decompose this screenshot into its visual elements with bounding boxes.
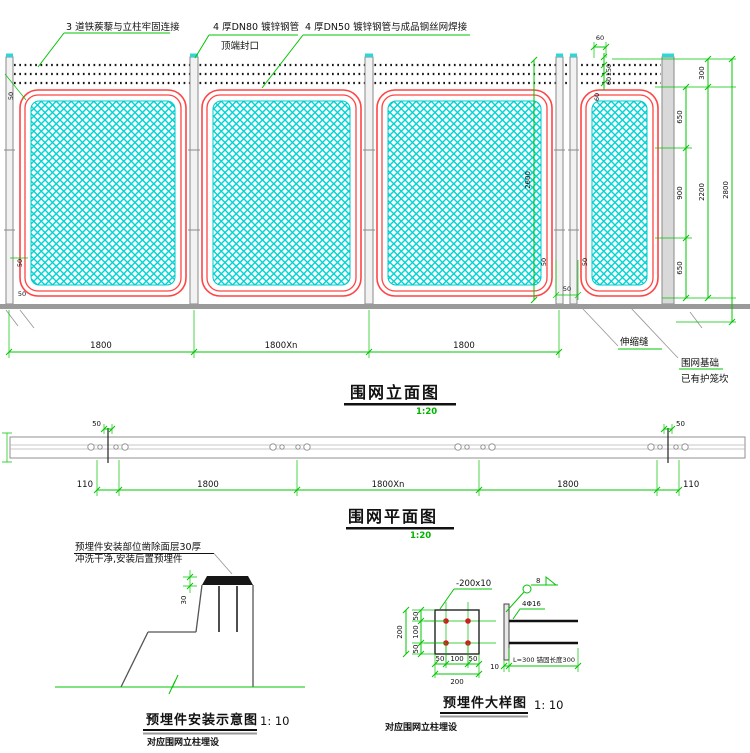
break-symbol	[169, 675, 178, 694]
view-scale: 1:20	[410, 531, 431, 541]
mesh-panel	[202, 90, 361, 296]
view-title: 预埋件安装示意图	[146, 712, 258, 728]
ground-line	[0, 304, 750, 309]
post-b	[365, 57, 373, 304]
dim-label: 50	[92, 420, 101, 428]
mesh-panel	[377, 90, 552, 296]
dim-label: 650	[676, 261, 684, 274]
cad-drawing-canvas: 1800 1800Xn 1800 650 900 650 300 2200 28…	[0, 0, 750, 753]
dim-label: 2200	[698, 183, 706, 201]
install-title-block: 预埋件安装示意图 1: 10 对应围网立柱埋设	[143, 712, 289, 748]
view-subtitle: 对应围网立柱埋设	[385, 721, 458, 733]
chisel-depth-dim: 30	[180, 570, 197, 604]
note-dn50: 4 厚DN50 镀锌钢管与成品钢丝网焊接	[305, 21, 468, 33]
dim-label: 900	[676, 186, 684, 199]
dim-label: 60	[596, 34, 604, 42]
embedded-plate-cap	[202, 576, 253, 585]
anchor-rods	[219, 586, 237, 632]
install-detail: 预埋件安装部位凿除面层30厚 冲洗干净,安装后置预埋件 30 预埋件安装示意图 …	[55, 541, 305, 748]
anchor-count-label: 4Φ16	[522, 600, 541, 608]
post-joint-2	[570, 57, 577, 304]
dim-label: 50	[412, 612, 420, 621]
view-scale: 1: 10	[534, 698, 563, 712]
title-underline-2	[143, 733, 257, 735]
dim-label: 50	[18, 290, 26, 298]
title-underline	[440, 712, 528, 714]
dim-label: 110	[683, 480, 699, 490]
note-expansion-joint: 伸缩缝	[620, 336, 649, 348]
dim-label: 50	[469, 655, 478, 663]
dim-label: 50	[16, 259, 24, 267]
mesh-panel	[581, 90, 658, 296]
dim-label: 200	[450, 678, 463, 686]
plate-horizontal-dims: 50 100 50 200	[432, 643, 482, 686]
note-foundation-2: 已有护笼坎	[681, 373, 729, 385]
dim-label: 150	[605, 64, 613, 76]
post-caps	[6, 54, 674, 58]
plan-fence-band	[10, 437, 745, 458]
dim-label: 50	[540, 258, 548, 266]
title-underline-2	[440, 716, 528, 718]
anchor-note: L=300 锚固长度300	[513, 655, 575, 664]
elevation-title-block: 围网立面图 1:20	[344, 383, 456, 417]
dim-label: 1800Xn	[265, 341, 298, 351]
dim-label: 1800	[197, 480, 219, 490]
plan-view: 50 50 110 1800 1800Xn 1800 110 围网平面图 1:2…	[2, 420, 745, 541]
view-title: 围网立面图	[350, 383, 440, 402]
post-joint-1	[556, 57, 563, 304]
dim-label: 1800	[453, 341, 475, 351]
note-foundation-1: 围网基础	[681, 357, 719, 369]
weld-size-label: 8	[536, 577, 540, 585]
dim-label: 100	[412, 625, 420, 638]
title-underline	[344, 403, 456, 406]
dim-label: 10	[490, 663, 499, 671]
dim-label: 50	[412, 645, 420, 654]
title-underline	[346, 527, 454, 530]
view-subtitle: 对应围网立柱埋设	[147, 736, 220, 748]
post-right-wall	[662, 57, 674, 304]
view-title: 围网平面图	[348, 507, 438, 526]
dim-label: 30	[180, 596, 188, 605]
dim-label: 2600	[524, 171, 532, 189]
note-dn80-cap: 顶端封口	[221, 40, 259, 52]
note-barbed-wire: 3 道铁蒺藜与立柱牢固连接	[66, 21, 180, 33]
dim-label: 1800	[557, 480, 579, 490]
plate-side-view: 8 4Φ16 10 L=300 锚固长度300	[490, 577, 581, 672]
title-underline	[143, 729, 257, 731]
anchor-dots	[443, 618, 471, 646]
plan-title-block: 围网平面图 1:20	[346, 507, 454, 541]
dim-label: 50	[563, 285, 571, 293]
dim-label: 650	[676, 110, 684, 123]
dim-label: 300	[698, 66, 706, 79]
mesh-panel	[20, 90, 186, 296]
embed-title-block: 预埋件大样图 1: 10 对应围网立柱埋设	[385, 695, 563, 733]
install-note-1: 预埋件安装部位凿除面层30厚	[75, 541, 202, 553]
embed-detail: -200x10 50 100 50 200 50 100 50 200	[385, 577, 581, 733]
dim-label: 1800	[90, 341, 112, 351]
plate-vertical-dims: 50 100 50 200	[396, 607, 446, 657]
note-dn80: 4 厚DN80 镀锌钢管	[213, 21, 299, 33]
elevation-view: 1800 1800Xn 1800 650 900 650 300 2200 28…	[0, 21, 750, 417]
anchor-bars	[509, 621, 578, 643]
dim-label: 110	[77, 480, 93, 490]
view-scale: 1: 10	[260, 714, 289, 728]
plate-edge	[504, 604, 509, 660]
dim-label: 50	[436, 655, 445, 663]
dim-label: 50	[676, 420, 685, 428]
post-a	[190, 57, 198, 304]
plate-label: -200x10	[456, 579, 491, 589]
dim-label: 100	[450, 655, 463, 663]
dim-label: 50	[581, 258, 589, 266]
dim-label: 200	[396, 625, 404, 638]
dim-label: 60	[605, 77, 613, 85]
dim-label: 2800	[722, 181, 730, 199]
install-note-2: 冲洗干净,安装后置预埋件	[75, 553, 183, 565]
dim-label: 1800Xn	[372, 480, 405, 490]
barbed-wire-rows	[14, 65, 661, 83]
plate-outline	[435, 610, 479, 654]
dim-label: 50	[7, 92, 15, 100]
view-scale: 1:20	[416, 407, 437, 417]
dim-label: 60	[593, 93, 601, 101]
view-title: 预埋件大样图	[443, 695, 527, 711]
below-ground-hatch	[6, 310, 702, 328]
